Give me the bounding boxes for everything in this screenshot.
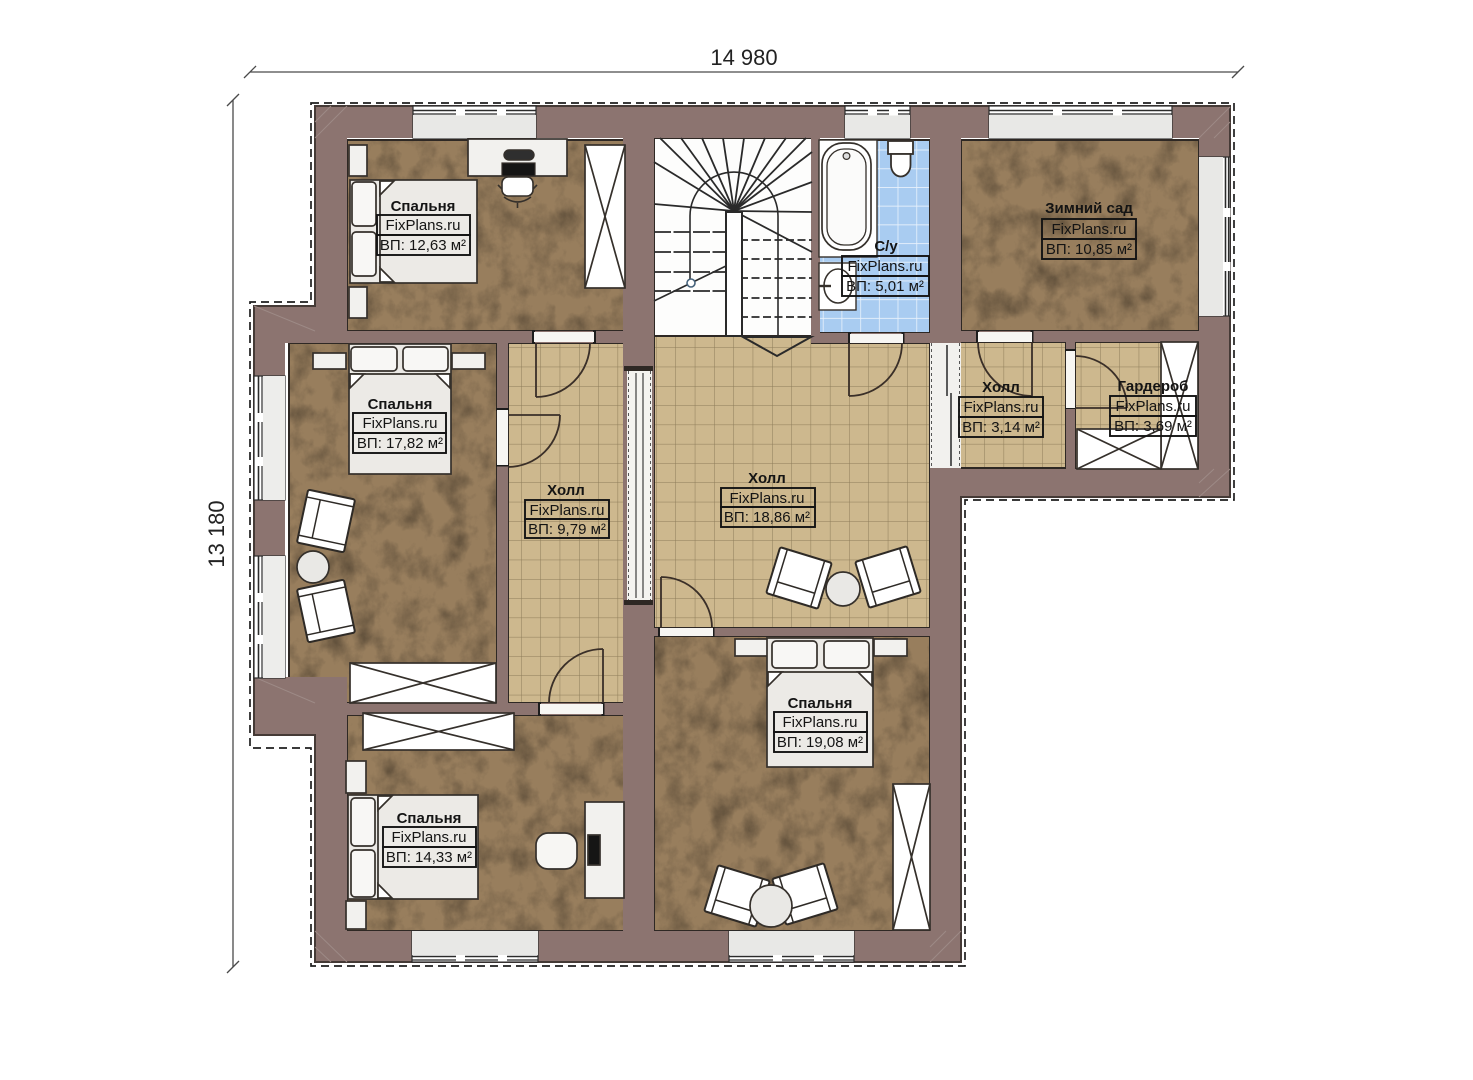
svg-text:ВП: 17,82 м²: ВП: 17,82 м² <box>357 435 443 452</box>
svg-text:ВП: 19,08 м²: ВП: 19,08 м² <box>777 734 863 751</box>
svg-text:Гардероб: Гардероб <box>1118 378 1189 395</box>
svg-text:Холл: Холл <box>748 470 786 487</box>
svg-text:ВП: 3,14 м²: ВП: 3,14 м² <box>962 419 1040 436</box>
svg-text:Спальня: Спальня <box>391 198 456 215</box>
svg-text:ВП: 5,01 м²: ВП: 5,01 м² <box>846 278 924 295</box>
svg-text:ВП: 18,86 м²: ВП: 18,86 м² <box>724 509 810 526</box>
svg-text:13 180: 13 180 <box>204 500 229 567</box>
svg-text:FixPlans.ru: FixPlans.ru <box>362 415 437 432</box>
svg-text:ВП: 10,85 м²: ВП: 10,85 м² <box>1046 241 1132 258</box>
svg-text:Спальня: Спальня <box>368 396 433 413</box>
svg-text:Холл: Холл <box>982 379 1020 396</box>
svg-text:FixPlans.ru: FixPlans.ru <box>729 490 804 507</box>
svg-text:FixPlans.ru: FixPlans.ru <box>1115 398 1190 415</box>
svg-text:Спальня: Спальня <box>788 695 853 712</box>
svg-text:FixPlans.ru: FixPlans.ru <box>1051 221 1126 238</box>
svg-text:ВП: 3,69 м²: ВП: 3,69 м² <box>1114 418 1192 435</box>
svg-text:ВП: 12,63 м²: ВП: 12,63 м² <box>380 237 466 254</box>
svg-text:FixPlans.ru: FixPlans.ru <box>782 714 857 731</box>
svg-text:С/у: С/у <box>874 238 898 255</box>
svg-text:14 980: 14 980 <box>710 45 777 70</box>
svg-text:FixPlans.ru: FixPlans.ru <box>385 217 460 234</box>
svg-text:ВП: 9,79 м²: ВП: 9,79 м² <box>528 521 606 538</box>
svg-text:Холл: Холл <box>547 482 585 499</box>
svg-text:ВП: 14,33 м²: ВП: 14,33 м² <box>386 849 472 866</box>
svg-text:Спальня: Спальня <box>397 810 462 827</box>
svg-text:FixPlans.ru: FixPlans.ru <box>847 258 922 275</box>
svg-text:FixPlans.ru: FixPlans.ru <box>963 399 1038 416</box>
svg-text:FixPlans.ru: FixPlans.ru <box>391 829 466 846</box>
svg-text:Зимний сад: Зимний сад <box>1045 200 1133 217</box>
svg-text:FixPlans.ru: FixPlans.ru <box>529 502 604 519</box>
